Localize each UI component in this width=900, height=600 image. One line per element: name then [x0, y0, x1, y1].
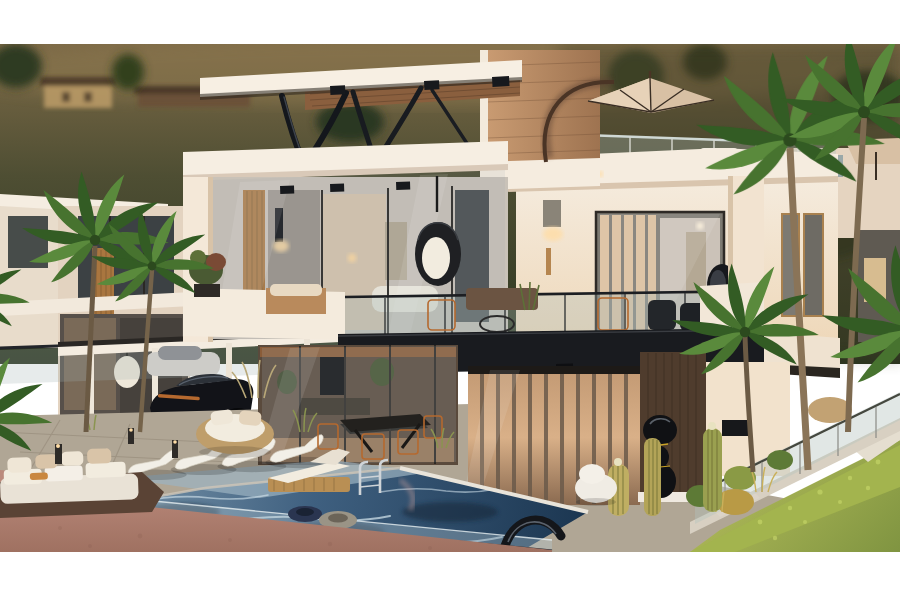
letterbox-top	[0, 0, 900, 44]
letterbox-bottom	[0, 552, 900, 600]
slot-window	[722, 420, 748, 436]
wicker-chair	[808, 397, 852, 423]
wall-lamp	[543, 200, 561, 227]
living-room-glass	[258, 345, 458, 465]
villa-render	[0, 0, 900, 600]
